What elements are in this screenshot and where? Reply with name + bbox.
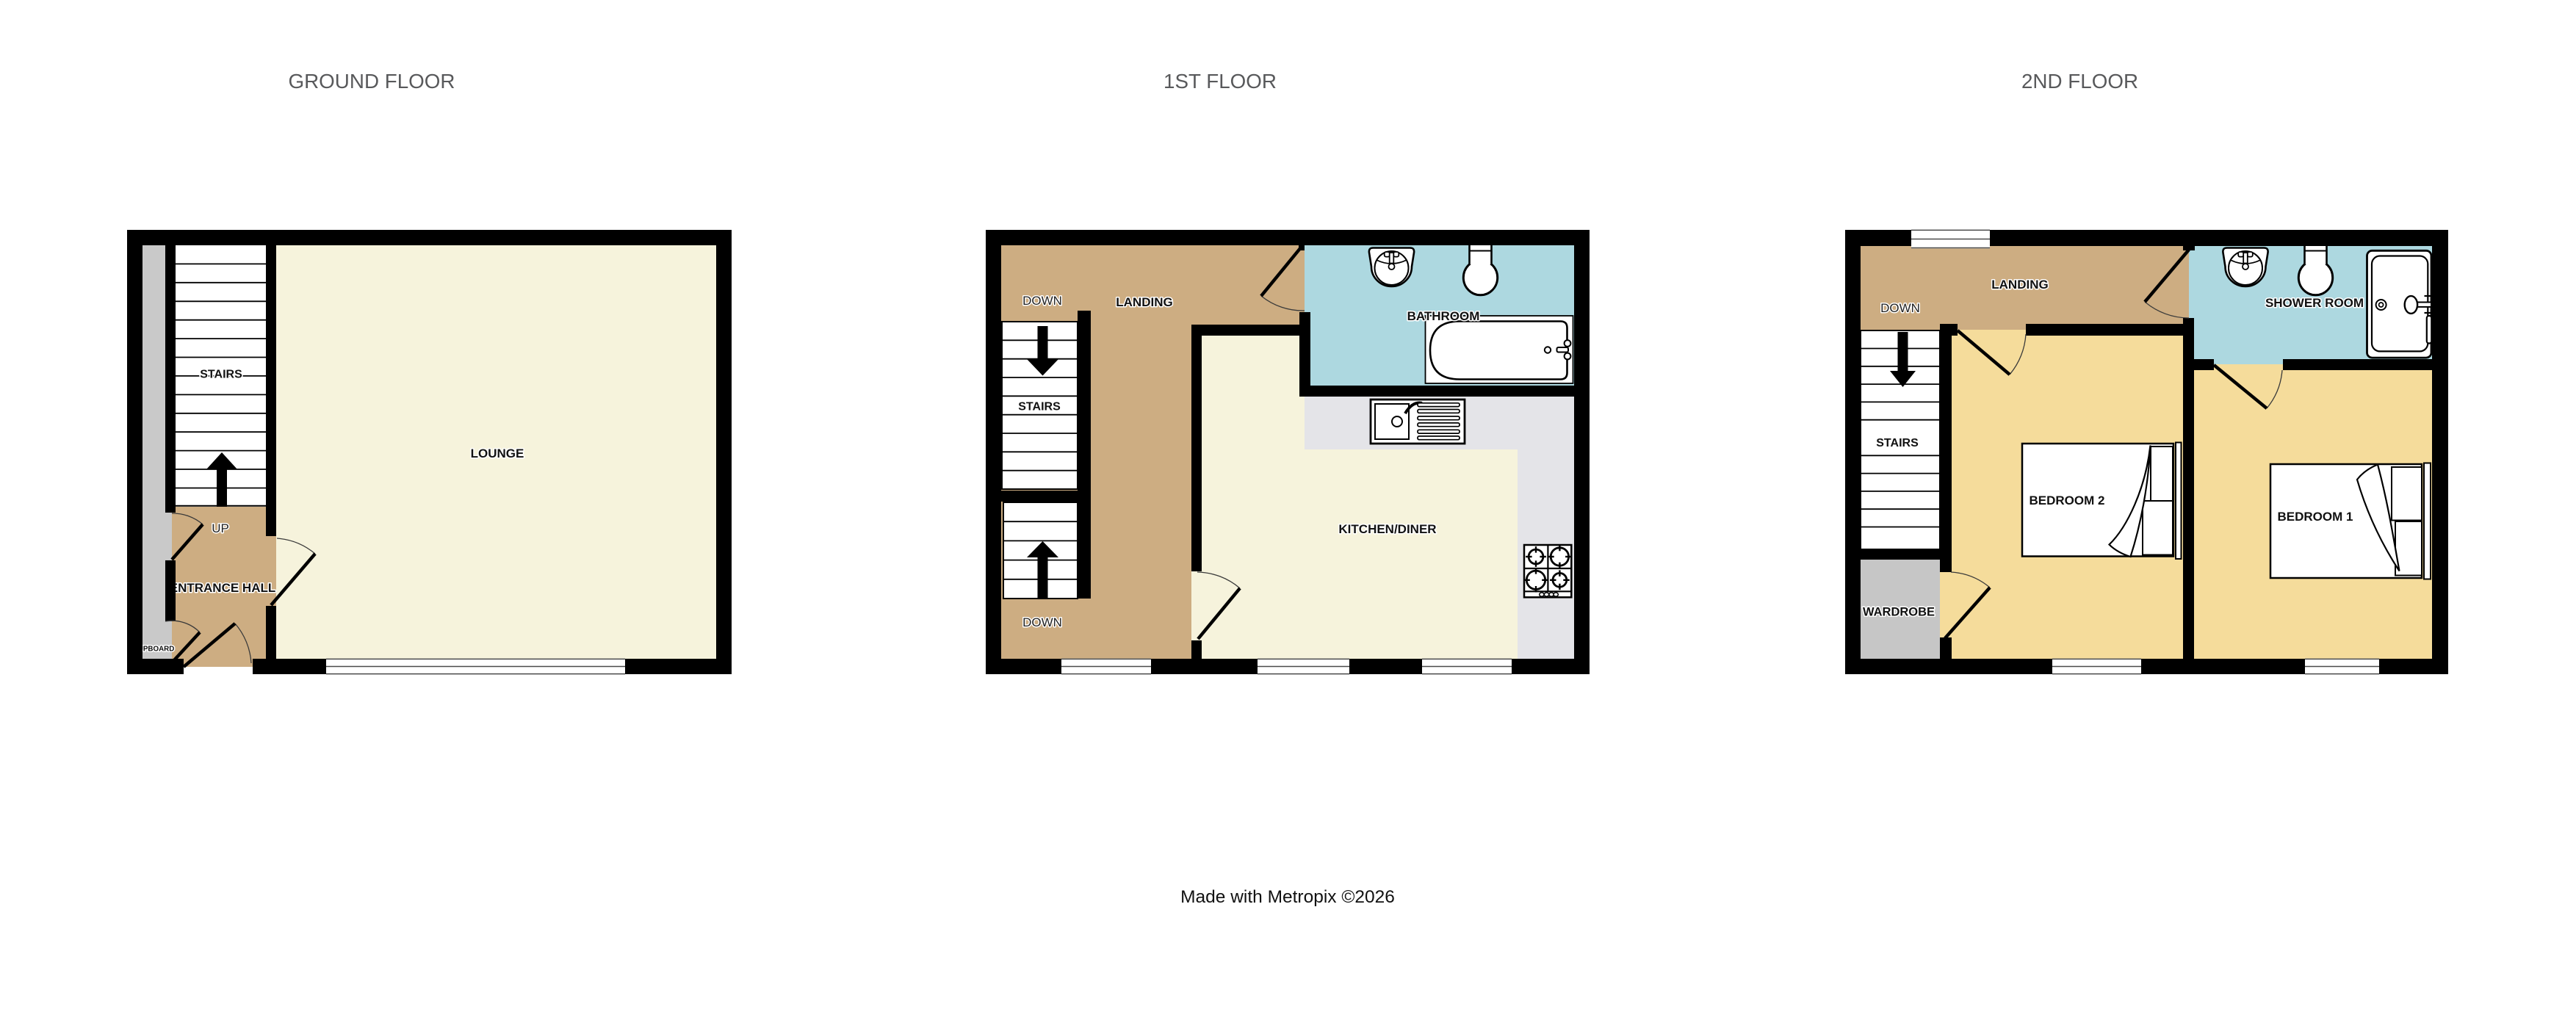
svg-text:UP: UP <box>212 521 229 535</box>
svg-text:KITCHEN/DINER: KITCHEN/DINER <box>1338 522 1436 536</box>
svg-text:DOWN: DOWN <box>1880 301 1920 315</box>
svg-text:GROUND FLOOR: GROUND FLOOR <box>288 70 455 93</box>
svg-text:1ST FLOOR: 1ST FLOOR <box>1163 70 1277 93</box>
svg-text:STAIRS: STAIRS <box>200 369 242 381</box>
svg-text:DOWN: DOWN <box>1022 294 1062 308</box>
svg-text:BEDROOM 1: BEDROOM 1 <box>2278 510 2353 524</box>
svg-text:Made with Metropix ©2026: Made with Metropix ©2026 <box>1180 887 1395 907</box>
svg-text:LANDING: LANDING <box>1116 295 1172 309</box>
svg-text:LOUNGE: LOUNGE <box>471 447 524 460</box>
svg-text:STAIRS: STAIRS <box>1018 401 1061 413</box>
svg-text:LANDING: LANDING <box>1991 278 2048 292</box>
svg-text:DOWN: DOWN <box>1022 615 1062 629</box>
svg-text:2ND FLOOR: 2ND FLOOR <box>2021 70 2138 93</box>
svg-text:SHOWER ROOM: SHOWER ROOM <box>2265 296 2364 310</box>
svg-text:STAIRS: STAIRS <box>1876 437 1919 449</box>
svg-text:BATHROOM: BATHROOM <box>1407 309 1480 323</box>
svg-text:ENTRANCE HALL: ENTRANCE HALL <box>170 581 276 595</box>
svg-text:WARDROBE: WARDROBE <box>1863 606 1935 619</box>
svg-text:BEDROOM 2: BEDROOM 2 <box>2030 494 2105 507</box>
